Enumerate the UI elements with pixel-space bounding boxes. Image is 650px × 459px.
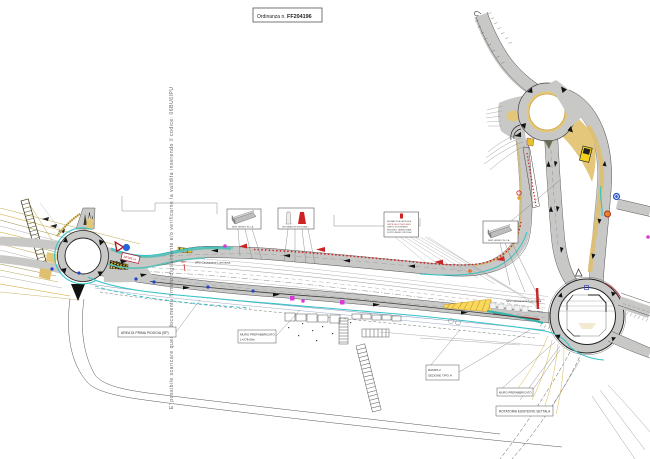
svg-text:LIMITE VELOCITA 30 KM/H: LIMITE VELOCITA 30 KM/H xyxy=(387,223,411,226)
svg-text:DOPPIO SENSO CIRCOLAZ.: DOPPIO SENSO CIRCOLAZ. xyxy=(387,231,413,234)
svg-text:NEW JERSEY IN C.A.: NEW JERSEY IN C.A. xyxy=(488,239,510,242)
svg-text:MURO PREFABBRICATO: MURO PREFABBRICATO xyxy=(240,333,276,337)
svg-text:NEW JERSEY IN C.A.: NEW JERSEY IN C.A. xyxy=(232,226,254,229)
svg-text:SEZIONE TIPO H: SEZIONE TIPO H xyxy=(428,374,452,378)
svg-text:ROTATORIA ESISTENTE SETTALA: ROTATORIA ESISTENTE SETTALA xyxy=(499,410,551,414)
svg-text:E' possibile scaricare questo: E' possibile scaricare questo documento … xyxy=(169,87,175,409)
svg-text:SP2 Cassanese Luminosa: SP2 Cassanese Luminosa xyxy=(506,299,542,303)
svg-text:L=278.00m: L=278.00m xyxy=(240,338,256,342)
svg-text:Ordinanza n. FF204196: Ordinanza n. FF204196 xyxy=(257,14,312,20)
svg-text:RESTRING. CARREGGIATA: RESTRING. CARREGGIATA xyxy=(387,228,412,231)
svg-text:SP2 Cassanese Luminosa: SP2 Cassanese Luminosa xyxy=(195,261,231,265)
svg-text:RAMPA 2: RAMPA 2 xyxy=(428,368,441,372)
svg-text:AREA DI PRIMA PIOGGIA (SP): AREA DI PRIMA PIOGGIA (SP) xyxy=(121,331,169,335)
svg-text:DELINEATORI FLESSIBILI: DELINEATORI FLESSIBILI xyxy=(282,226,309,229)
svg-text:MURO PREFABBRICATO: MURO PREFABBRICATO xyxy=(499,391,532,395)
svg-text:SEGNALETICA VERTICALE: SEGNALETICA VERTICALE xyxy=(387,220,412,223)
svg-text:SP2: SP2 xyxy=(181,261,186,264)
svg-text:DIVIETO DI SORPASSO: DIVIETO DI SORPASSO xyxy=(387,226,408,229)
